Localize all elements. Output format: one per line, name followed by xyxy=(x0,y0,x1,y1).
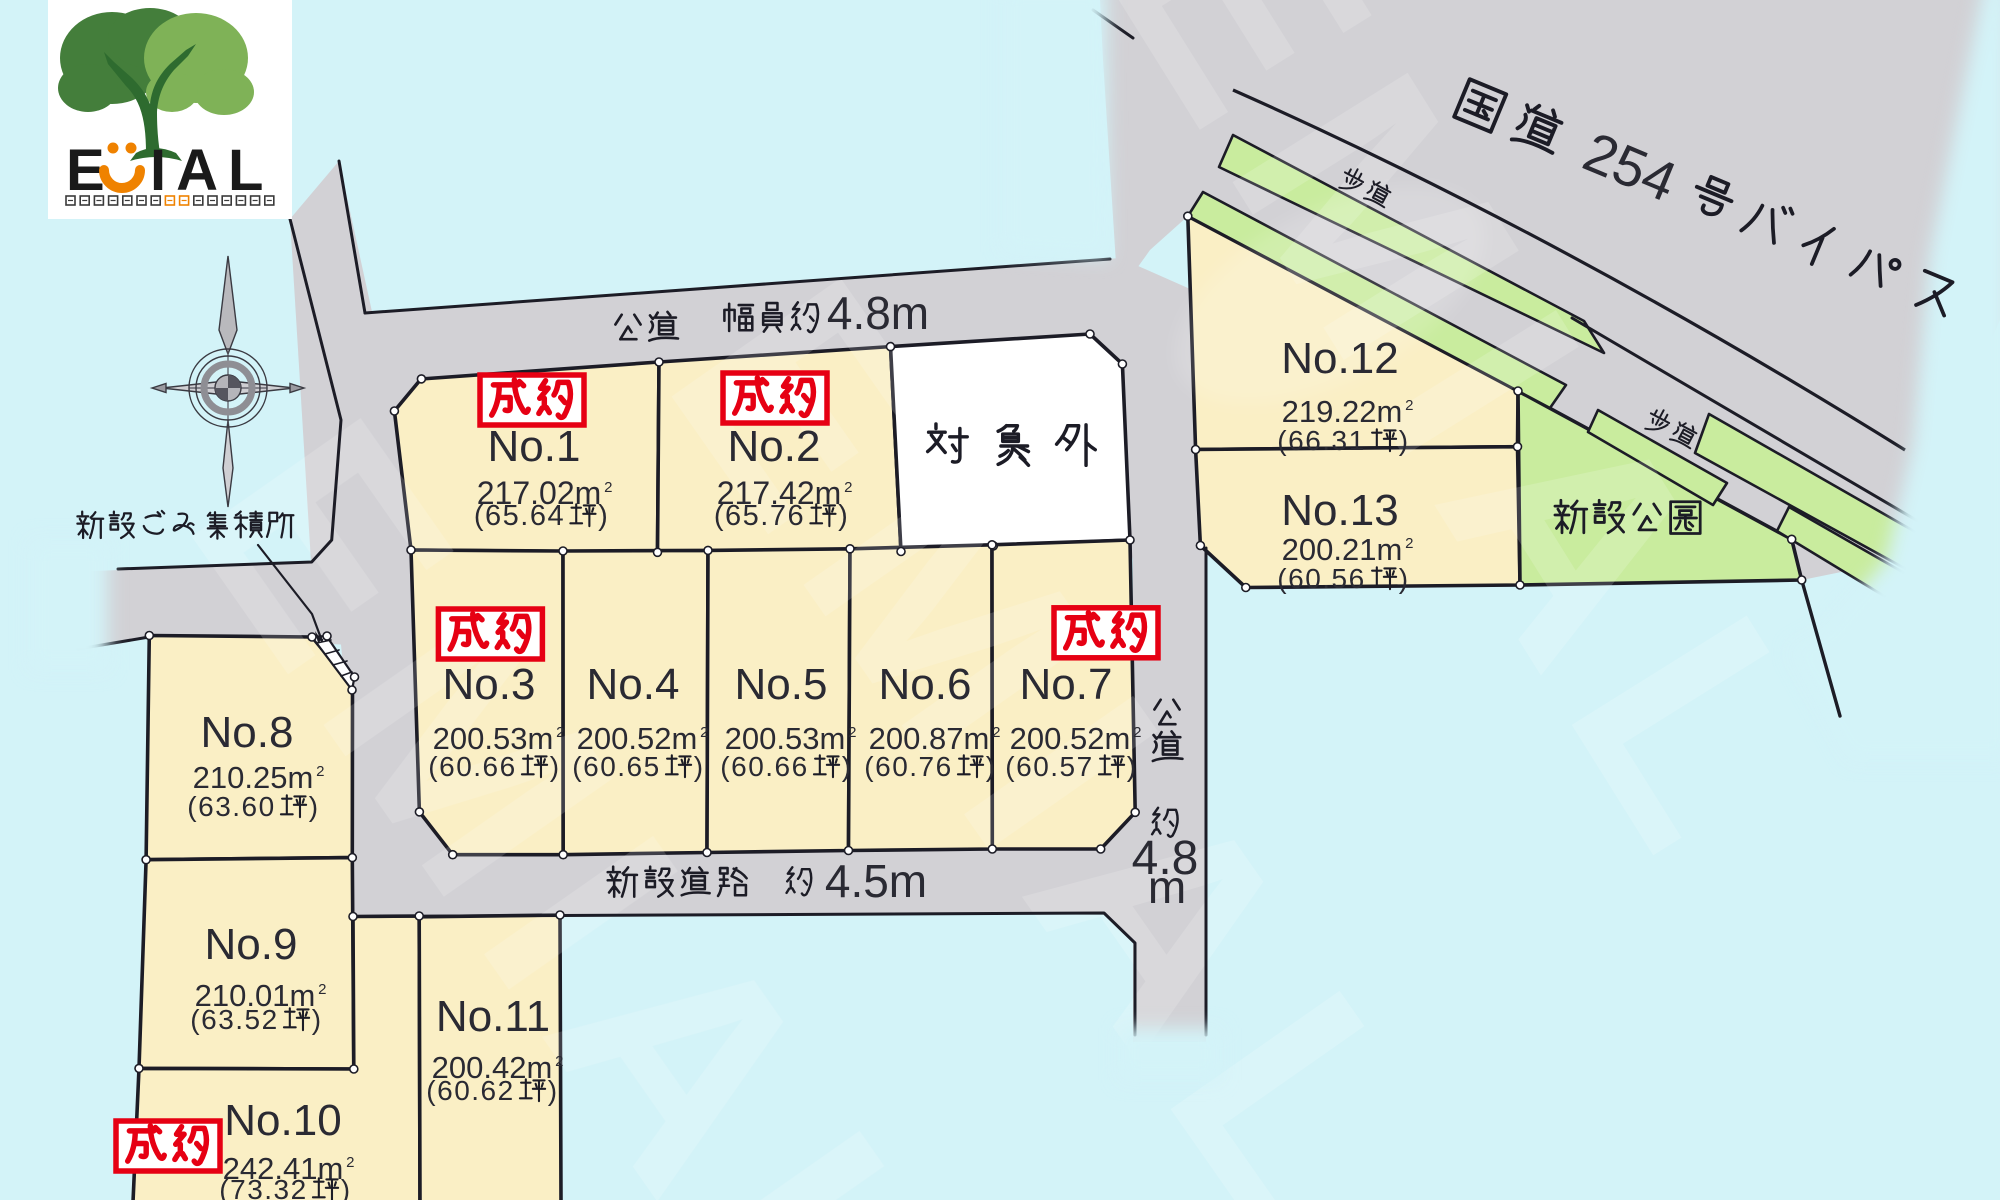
svg-text:2: 2 xyxy=(1405,397,1413,414)
svg-text:No.10: No.10 xyxy=(224,1096,341,1145)
svg-text:2: 2 xyxy=(316,763,324,780)
svg-text:No.3: No.3 xyxy=(443,660,536,709)
svg-text:(60.56: (60.56 xyxy=(1277,563,1365,594)
svg-text:No.11: No.11 xyxy=(436,992,550,1041)
svg-text:No.4: No.4 xyxy=(587,660,680,709)
svg-text:No.7: No.7 xyxy=(1020,660,1113,709)
svg-text:): ) xyxy=(838,500,848,532)
svg-text:No.13: No.13 xyxy=(1281,486,1398,535)
svg-text:(60.57: (60.57 xyxy=(1005,751,1093,782)
svg-text:No.5: No.5 xyxy=(735,660,828,709)
svg-text:(60.65: (60.65 xyxy=(572,751,660,782)
svg-text:2: 2 xyxy=(346,1154,354,1171)
svg-text:No.12: No.12 xyxy=(1281,334,1398,383)
svg-text:IAL: IAL xyxy=(150,138,273,203)
svg-text:(63.52: (63.52 xyxy=(190,1004,278,1035)
svg-text:2: 2 xyxy=(700,724,708,741)
svg-text:(60.62: (60.62 xyxy=(426,1075,514,1106)
svg-text:m: m xyxy=(1148,861,1186,913)
svg-text:): ) xyxy=(550,751,559,782)
svg-text:No.8: No.8 xyxy=(201,708,294,757)
svg-text:): ) xyxy=(1127,751,1136,782)
svg-text:): ) xyxy=(1399,563,1408,594)
svg-text:219.22m: 219.22m xyxy=(1282,394,1403,429)
svg-text:2: 2 xyxy=(555,1053,563,1070)
svg-text:E: E xyxy=(66,138,105,203)
svg-text:2: 2 xyxy=(992,724,1000,741)
svg-text:No.2: No.2 xyxy=(728,422,821,471)
svg-text:): ) xyxy=(1399,425,1408,456)
svg-text:(60.66: (60.66 xyxy=(720,751,808,782)
svg-text:(65.64: (65.64 xyxy=(474,500,565,532)
svg-text:(66.31: (66.31 xyxy=(1277,425,1365,456)
svg-text:No.6: No.6 xyxy=(879,660,972,709)
svg-text:(63.60: (63.60 xyxy=(187,791,275,822)
svg-text:2: 2 xyxy=(1133,724,1141,741)
svg-text:200.21m: 200.21m xyxy=(1282,532,1403,567)
svg-text:): ) xyxy=(986,751,995,782)
svg-text:2: 2 xyxy=(844,479,852,496)
svg-text:(60.76: (60.76 xyxy=(864,751,952,782)
svg-text:2: 2 xyxy=(848,724,856,741)
svg-text:4.8m: 4.8m xyxy=(827,287,929,339)
svg-text:4.5m: 4.5m xyxy=(825,855,927,907)
svg-text:): ) xyxy=(341,1174,350,1200)
svg-text:): ) xyxy=(598,500,608,532)
svg-text:): ) xyxy=(842,751,851,782)
svg-text:2: 2 xyxy=(556,724,564,741)
svg-text:2: 2 xyxy=(604,479,612,496)
svg-text:(65.76: (65.76 xyxy=(714,500,805,532)
svg-text:(73.32: (73.32 xyxy=(219,1174,307,1200)
svg-text:2: 2 xyxy=(1405,535,1413,552)
svg-text:): ) xyxy=(548,1075,557,1106)
svg-text:(60.66: (60.66 xyxy=(428,751,516,782)
svg-text:No.1: No.1 xyxy=(488,422,581,471)
svg-text:210.25m: 210.25m xyxy=(193,760,314,795)
svg-text:): ) xyxy=(312,1004,321,1035)
svg-text:): ) xyxy=(694,751,703,782)
svg-text:): ) xyxy=(309,791,318,822)
svg-text:2: 2 xyxy=(318,981,326,998)
svg-text:No.9: No.9 xyxy=(205,920,298,969)
